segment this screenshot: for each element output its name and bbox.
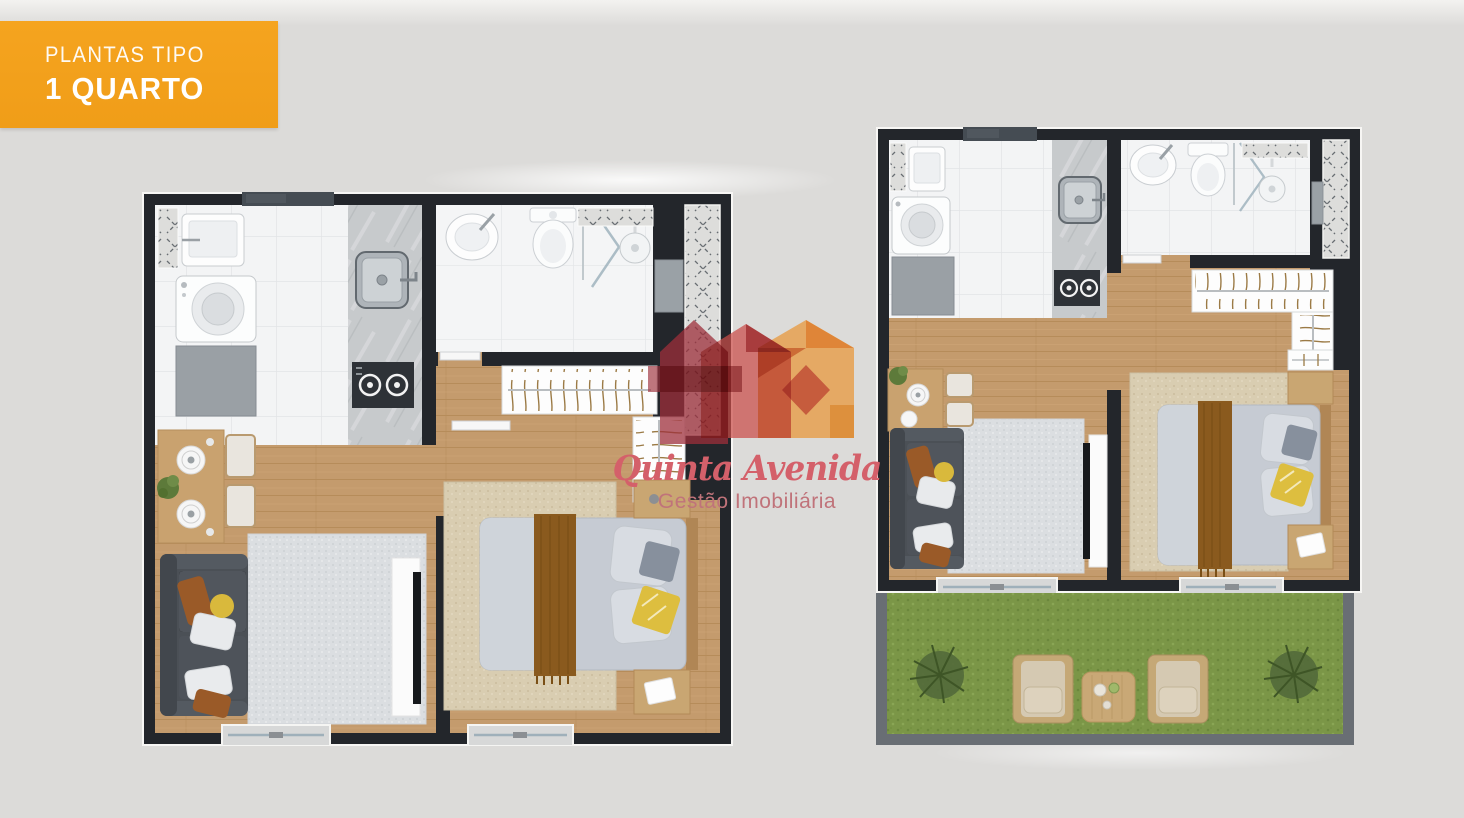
kitchen-sink — [356, 252, 416, 308]
headboard — [686, 518, 698, 670]
cooktop — [1054, 270, 1100, 306]
bathroom-door — [1123, 255, 1161, 263]
living-window — [222, 725, 330, 746]
nightstand-bottom — [634, 670, 690, 714]
wardrobe-horizontal — [1192, 270, 1333, 312]
garden-armchair — [1013, 655, 1073, 723]
wall-pocket — [1312, 182, 1323, 224]
toilet — [530, 208, 576, 268]
garden-coffee-table — [1082, 672, 1135, 722]
bath-mat — [1242, 143, 1308, 158]
wall-pocket — [655, 260, 683, 312]
garden-armchair — [1148, 655, 1208, 723]
closet-small — [1288, 350, 1333, 370]
floor-plan-left — [142, 192, 733, 746]
bathroom-sink — [1130, 145, 1176, 185]
washing-machine — [176, 276, 256, 342]
living-rug — [948, 419, 1084, 573]
doormat — [890, 143, 906, 191]
badge-title: PLANTAS TIPO — [45, 42, 259, 68]
pillow-yellow — [934, 462, 954, 482]
wardrobe-horizontal — [502, 366, 657, 414]
dining-table — [888, 366, 943, 431]
doormat — [158, 208, 178, 268]
cooktop — [352, 362, 414, 408]
hall-door — [452, 421, 510, 430]
dining-table — [157, 430, 224, 543]
plan-type-badge: PLANTAS TIPO 1 QUARTO — [0, 21, 278, 128]
nightstand-top — [634, 480, 690, 518]
garden — [876, 593, 1354, 745]
tv — [1083, 443, 1090, 559]
nightstand-bottom — [1288, 525, 1333, 569]
entry-door — [242, 192, 334, 206]
washing-machine — [892, 197, 950, 254]
sofa — [160, 554, 248, 719]
entry-door — [963, 127, 1037, 141]
bedroom-window — [468, 725, 573, 746]
badge-subtitle: 1 QUARTO — [45, 71, 266, 107]
laundry-tank — [909, 147, 945, 191]
sofa — [890, 428, 964, 569]
laundry-tank — [182, 214, 244, 266]
tv — [413, 572, 421, 704]
laundry-cabinet — [892, 257, 954, 315]
service-shaft — [685, 205, 720, 435]
bathroom-door — [440, 352, 480, 360]
tv-unit — [1083, 435, 1107, 567]
pillow-yellow — [210, 594, 234, 618]
floor-plan-sheet: { "badge": { "title": "PLANTAS TIPO", "s… — [0, 0, 1464, 818]
bathroom-sink — [446, 214, 498, 260]
laundry-cabinet — [176, 346, 256, 416]
service-shaft — [1323, 140, 1349, 258]
kitchen-counter — [348, 205, 422, 445]
tv-unit — [392, 558, 421, 716]
bed — [480, 514, 698, 685]
floor-plan-right — [876, 127, 1362, 748]
nightstand-top — [1288, 372, 1333, 404]
kitchen-sink — [1059, 177, 1104, 223]
bath-mat — [578, 208, 653, 226]
